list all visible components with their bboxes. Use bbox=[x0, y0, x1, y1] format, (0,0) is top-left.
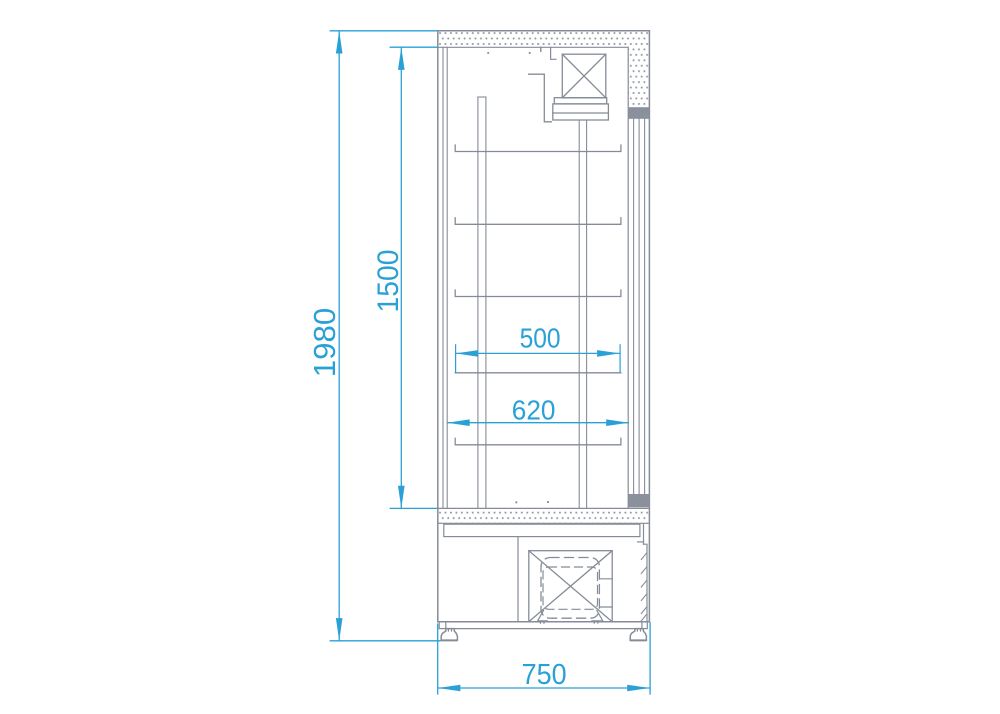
svg-text:750: 750 bbox=[522, 659, 567, 691]
svg-text:1980: 1980 bbox=[307, 308, 342, 377]
svg-text:500: 500 bbox=[520, 323, 561, 354]
svg-text:620: 620 bbox=[512, 395, 556, 426]
svg-text:1500: 1500 bbox=[372, 250, 405, 313]
